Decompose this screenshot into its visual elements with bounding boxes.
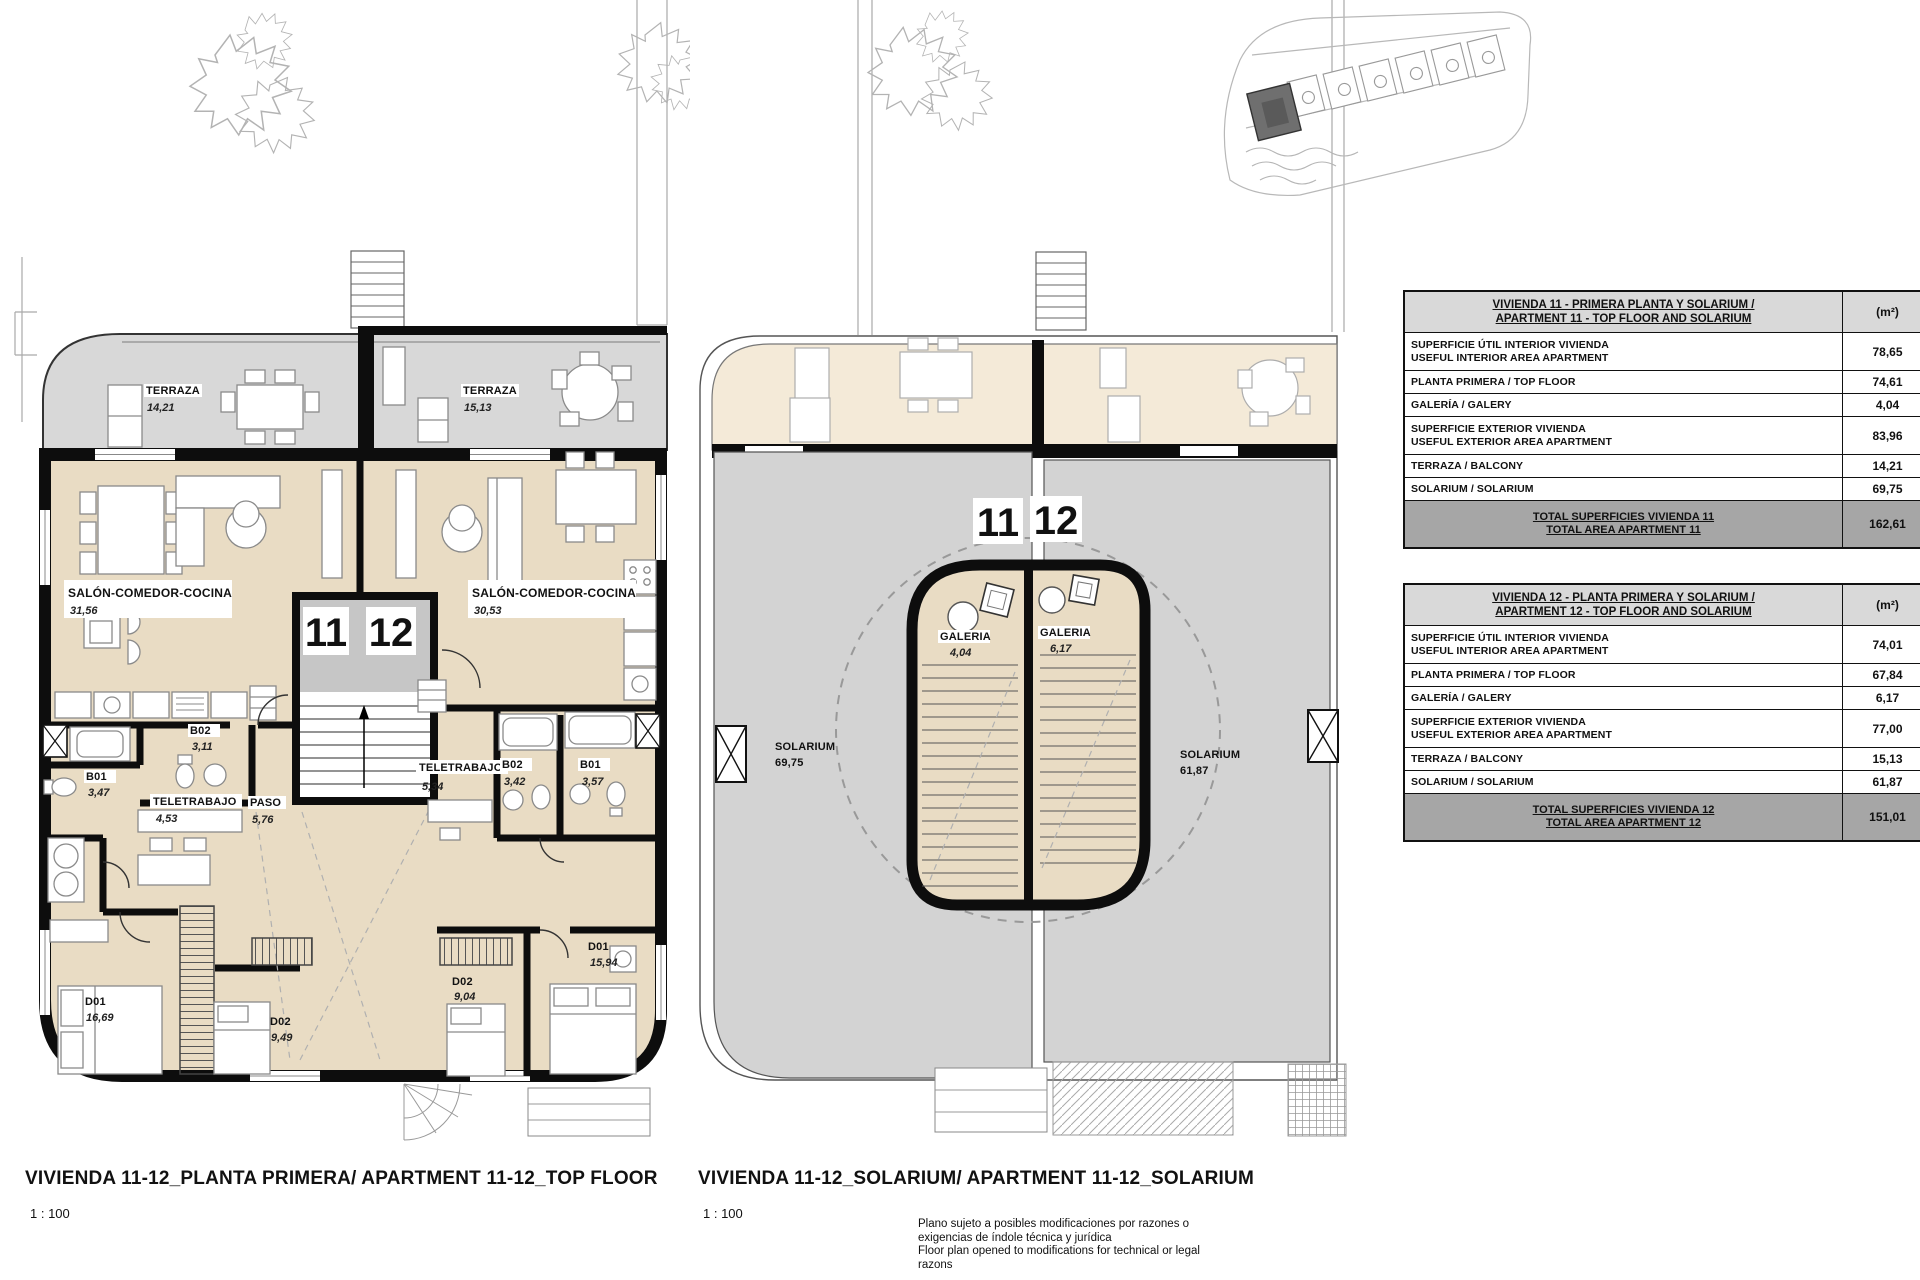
skylight-icon xyxy=(980,583,1014,617)
exterior-stairs-icon xyxy=(1036,252,1086,330)
table-title-line1: VIVIENDA 12 - PLANTA PRIMERA Y SOLARIUM … xyxy=(1411,591,1836,605)
total-label-line1: TOTAL SUPERFICIES VIVIENDA 11 xyxy=(1411,511,1836,525)
shelf-icon xyxy=(418,680,446,712)
tv-unit-icon xyxy=(322,470,342,578)
unit-header: (m²) xyxy=(1843,291,1920,333)
unit-12-number: 12 xyxy=(1034,499,1079,543)
planter-icon xyxy=(1100,348,1126,388)
sink-icon xyxy=(104,697,120,713)
wardrobe-icon xyxy=(180,906,214,1074)
sofa-icon xyxy=(488,478,522,582)
desk-icon xyxy=(138,810,242,832)
row-label: SUPERFICIE EXTERIOR VIVIENDA xyxy=(1411,423,1836,436)
room-label: SALÓN-COMEDOR-COCINA xyxy=(68,585,232,600)
wardrobe-icon xyxy=(252,938,312,965)
party-wall xyxy=(358,326,667,335)
unit-11-number: 11 xyxy=(977,501,1019,545)
total-label-line1: TOTAL SUPERFICIES VIVIENDA 12 xyxy=(1411,804,1836,818)
room-area: 31,56 xyxy=(70,605,98,617)
room-area: 16,69 xyxy=(86,1012,114,1024)
total-label-line2: TOTAL AREA APARTMENT 12 xyxy=(1411,817,1836,831)
table-title-line1: VIVIENDA 11 - PRIMERA PLANTA Y SOLARIUM … xyxy=(1411,298,1836,312)
room-area: 6,17 xyxy=(1050,643,1072,655)
room-label: D02 xyxy=(452,976,473,988)
row-label-2: USEFUL EXTERIOR AREA APARTMENT xyxy=(1411,436,1836,449)
row-label: SOLARIUM / SOLARIUM xyxy=(1411,776,1836,789)
room-label: B01 xyxy=(86,771,107,783)
room-label: GALERIA xyxy=(940,631,991,643)
room-label: B01 xyxy=(580,759,601,771)
row-label: SOLARIUM / SOLARIUM xyxy=(1411,483,1836,496)
row-value: 74,01 xyxy=(1843,626,1920,664)
room-label: TELETRABAJO xyxy=(419,762,503,774)
row-label: SUPERFICIE EXTERIOR VIVIENDA xyxy=(1411,716,1836,729)
solarium-scale: 1 : 100 xyxy=(703,1206,743,1221)
bench-icon xyxy=(1108,396,1140,442)
dining-table-icon xyxy=(98,486,164,574)
room-area: 9,04 xyxy=(454,991,475,1003)
toilet-icon xyxy=(178,755,192,764)
row-value: 77,00 xyxy=(1843,710,1920,748)
tree-icon xyxy=(868,5,1003,142)
row-label: SUPERFICIE ÚTIL INTERIOR VIVIENDA xyxy=(1411,632,1836,645)
room-area: 5,34 xyxy=(422,781,443,793)
room-area: 61,87 xyxy=(1180,765,1209,777)
room-label: TERRAZA xyxy=(146,385,200,397)
room-label: GALERIA xyxy=(1040,627,1091,639)
sofa-icon xyxy=(176,476,280,508)
disclaimer-note: Plano sujeto a posibles modificaciones p… xyxy=(918,1218,1200,1272)
row-label-2: USEFUL EXTERIOR AREA APARTMENT xyxy=(1411,729,1836,742)
chair-icon xyxy=(440,828,460,840)
shelf-icon xyxy=(50,920,108,942)
planter-icon xyxy=(383,347,405,405)
top-floor-caption: VIVIENDA 11-12_PLANTA PRIMERA/ APARTMENT… xyxy=(25,1168,658,1190)
wardrobe-icon xyxy=(440,938,512,965)
window-icon xyxy=(1180,446,1238,456)
row-value: 4,04 xyxy=(1843,394,1920,417)
site-plots xyxy=(1247,35,1505,141)
exterior-stairs-icon xyxy=(351,251,404,328)
room-label: D02 xyxy=(270,1016,291,1028)
table-title-line2: APARTMENT 11 - TOP FLOOR AND SOLARIUM xyxy=(1411,312,1836,326)
unit-12-number: 12 xyxy=(369,611,414,655)
row-label: TERRAZA / BALCONY xyxy=(1411,460,1836,473)
stair-structure xyxy=(912,565,1145,905)
row-value: 78,65 xyxy=(1843,333,1920,371)
row-value: 83,96 xyxy=(1843,417,1920,455)
row-label: PLANTA PRIMERA / TOP FLOOR xyxy=(1411,669,1836,682)
terrace-divider-wall xyxy=(358,334,374,450)
table-icon xyxy=(138,855,210,885)
water-waves-icon xyxy=(1246,148,1358,184)
room-area: 3,42 xyxy=(504,776,525,788)
row-label: SUPERFICIE ÚTIL INTERIOR VIVIENDA xyxy=(1411,339,1836,352)
room-area: 9,49 xyxy=(271,1032,293,1044)
round-table-icon xyxy=(1039,587,1065,613)
row-label: GALERÍA / GALERY xyxy=(1411,692,1836,705)
salon12-label: SALÓN-COMEDOR-COCINA 30,53 xyxy=(468,580,636,618)
sink-icon xyxy=(54,844,78,868)
solarium-caption: VIVIENDA 11-12_SOLARIUM/ APARTMENT 11-12… xyxy=(698,1168,1254,1190)
row-value: 69,75 xyxy=(1843,478,1920,501)
top-floor-plan: TERRAZA 14,21 TERRAZA 15,13 xyxy=(0,0,690,1160)
area-table-apartment-11: VIVIENDA 11 - PRIMERA PLANTA Y SOLARIUM … xyxy=(1403,290,1920,549)
room-area: 30,53 xyxy=(474,605,502,617)
total-value: 151,01 xyxy=(1843,794,1920,842)
row-label: TERRAZA / BALCONY xyxy=(1411,753,1836,766)
sink-icon xyxy=(632,676,648,692)
unit-header: (m²) xyxy=(1843,584,1920,626)
tv-unit-icon xyxy=(396,470,416,578)
row-value: 14,21 xyxy=(1843,455,1920,478)
chair-icon xyxy=(184,838,206,851)
disclaimer-line3: Floor plan opened to modifications for t… xyxy=(918,1245,1200,1259)
room-label: B02 xyxy=(502,759,523,771)
room-area: 15,94 xyxy=(590,957,618,969)
dining-table-icon xyxy=(900,352,972,398)
desk-icon xyxy=(428,800,492,822)
planter-icon xyxy=(795,348,829,404)
room-area: 5,76 xyxy=(252,814,274,826)
total-value: 162,61 xyxy=(1843,501,1920,549)
chair-icon xyxy=(150,838,172,851)
sofa-icon xyxy=(790,398,830,442)
room-area: 3,47 xyxy=(88,787,110,799)
salon11-label: SALÓN-COMEDOR-COCINA 31,56 xyxy=(64,580,232,618)
room-area: 4,04 xyxy=(949,647,971,659)
sink-icon xyxy=(204,764,226,786)
fridge-icon xyxy=(250,686,276,720)
room-area: 69,75 xyxy=(775,757,804,769)
dining-table-icon xyxy=(556,470,636,524)
room-label: SALÓN-COMEDOR-COCINA xyxy=(472,585,636,600)
total-label-line2: TOTAL AREA APARTMENT 11 xyxy=(1411,524,1836,538)
kitchen-counter-icon xyxy=(55,692,91,718)
disclaimer-line2: exigencias de índole técnica y jurídica xyxy=(918,1232,1200,1246)
tree-icon xyxy=(190,5,690,167)
room-label: TERRAZA xyxy=(463,385,517,397)
terrace-divider-wall xyxy=(1032,340,1044,458)
row-value: 74,61 xyxy=(1843,371,1920,394)
sink-icon xyxy=(503,790,523,810)
room-area: 14,21 xyxy=(147,402,175,414)
row-value: 67,84 xyxy=(1843,664,1920,687)
room-label: D01 xyxy=(85,996,106,1008)
room-area: 3,11 xyxy=(192,741,213,753)
row-label: PLANTA PRIMERA / TOP FLOOR xyxy=(1411,376,1836,389)
floor-plan-sheet: TERRAZA 14,21 TERRAZA 15,13 xyxy=(0,0,1920,1280)
top-floor-scale: 1 : 100 xyxy=(30,1206,70,1221)
row-value: 6,17 xyxy=(1843,687,1920,710)
table-title-line2: APARTMENT 12 - TOP FLOOR AND SOLARIUM xyxy=(1411,605,1836,619)
disclaimer-line4: razons xyxy=(918,1259,1200,1273)
skylight-icon xyxy=(1069,575,1099,605)
site-plan xyxy=(1200,0,1560,220)
room-area: 3,57 xyxy=(582,776,604,788)
row-label-2: USEFUL INTERIOR AREA APARTMENT xyxy=(1411,645,1836,658)
room-label: TELETRABAJO xyxy=(153,796,237,808)
dining-table-icon xyxy=(237,385,303,429)
toilet-icon xyxy=(532,785,550,809)
room-label: B02 xyxy=(190,725,211,737)
area-table-apartment-12: VIVIENDA 12 - PLANTA PRIMERA Y SOLARIUM … xyxy=(1403,583,1920,842)
row-value: 61,87 xyxy=(1843,771,1920,794)
disclaimer-line1: Plano sujeto a posibles modificaciones p… xyxy=(918,1218,1200,1232)
toilet-icon xyxy=(607,782,625,806)
room-area: 15,13 xyxy=(464,402,492,414)
row-label-2: USEFUL INTERIOR AREA APARTMENT xyxy=(1411,352,1836,365)
room-label: SOLARIUM xyxy=(1180,749,1240,761)
room-label: PASO xyxy=(250,797,281,809)
sink-icon xyxy=(54,872,78,896)
room-label: D01 xyxy=(588,941,609,953)
lower-roof-hatch xyxy=(404,1084,650,1140)
room-label: SOLARIUM xyxy=(775,741,835,753)
round-table-icon xyxy=(948,602,978,632)
row-label: GALERÍA / GALERY xyxy=(1411,399,1836,412)
row-value: 15,13 xyxy=(1843,748,1920,771)
unit-11-number: 11 xyxy=(305,611,347,655)
room-area: 4,53 xyxy=(155,813,177,825)
